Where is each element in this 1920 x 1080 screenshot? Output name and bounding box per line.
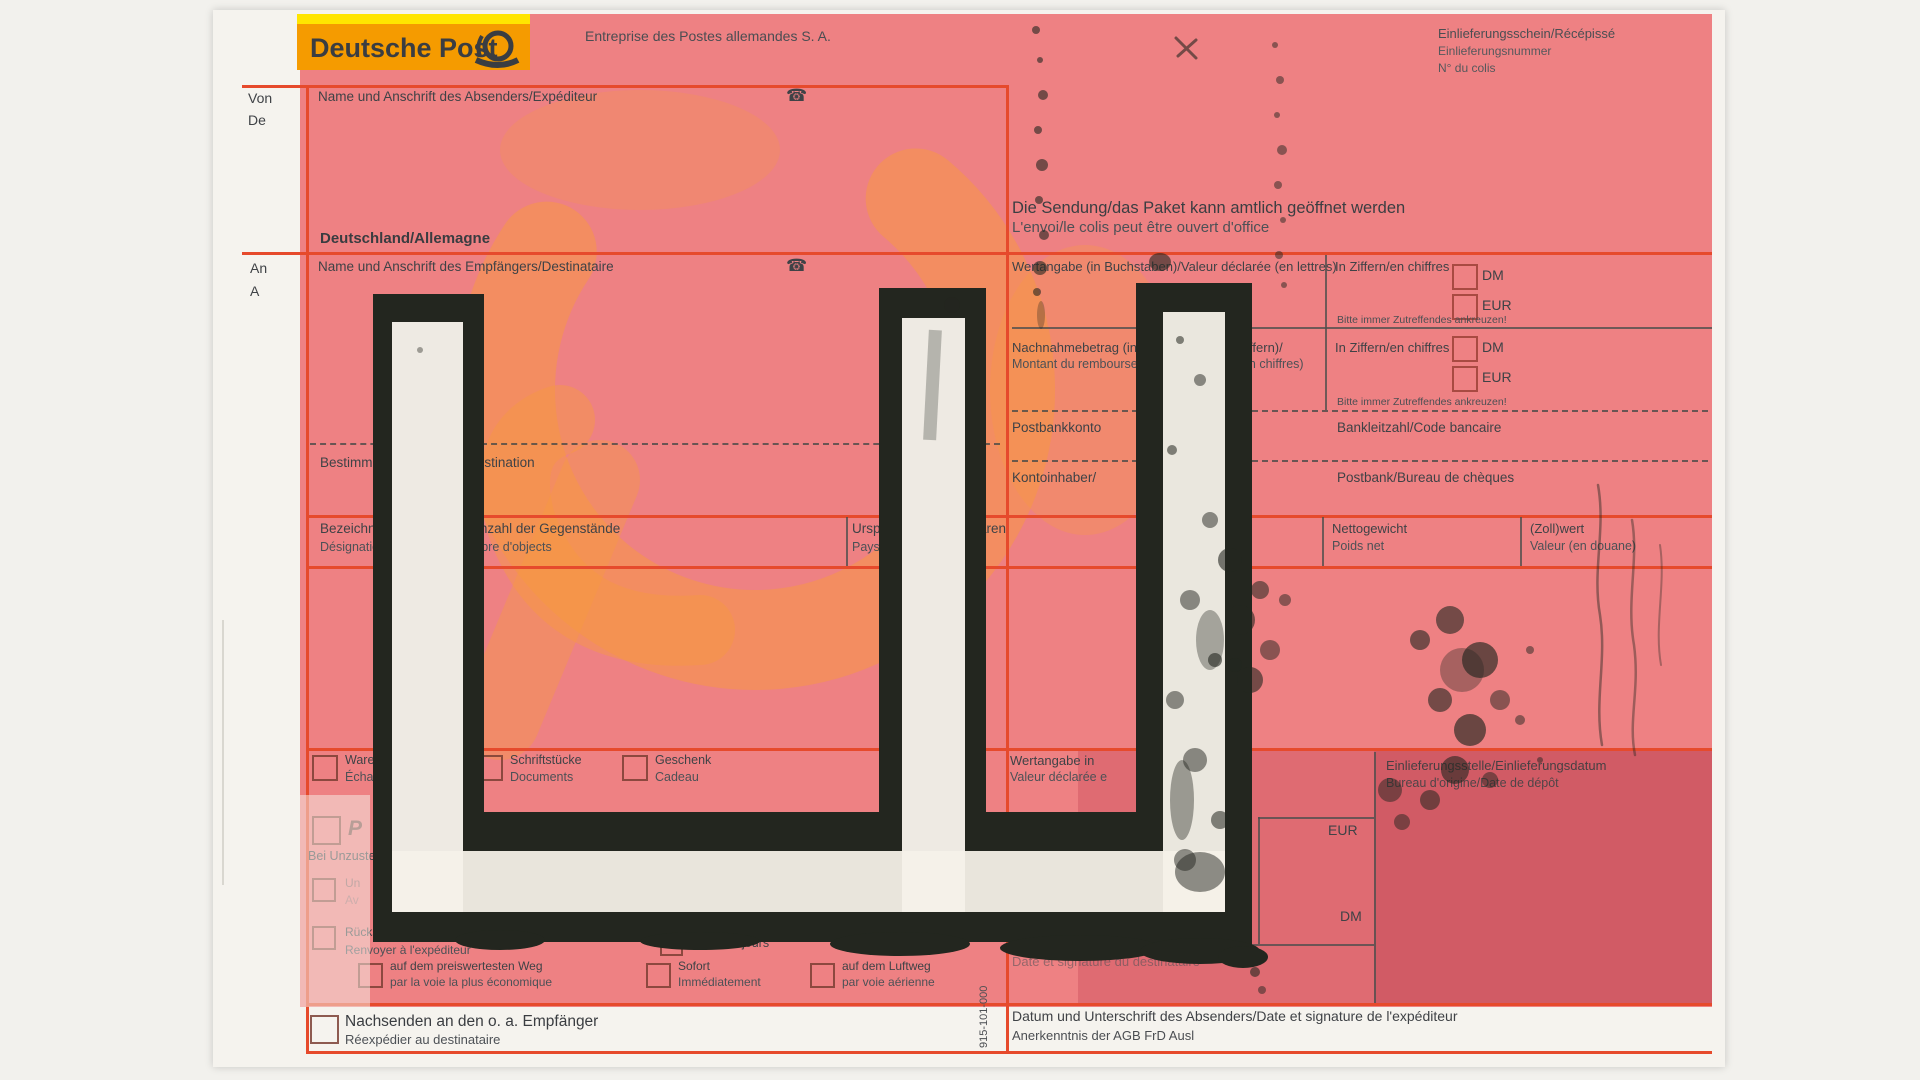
gray-customs-div3	[1520, 517, 1522, 566]
airmail-label-de: auf dem Luftweg	[842, 959, 931, 973]
customs-origin-fr: Pays d'origine	[852, 540, 930, 555]
postbank-account-label[interactable]: Postbankkonto	[1012, 420, 1101, 436]
sender-field-label[interactable]: Name und Anschrift des Absenders/Expédit…	[318, 89, 597, 105]
after-days-checkbox[interactable]	[660, 933, 683, 956]
line-bottom-section	[306, 748, 1712, 751]
receipt-title: Einlieferungsschein/Récépissé	[1438, 26, 1615, 42]
cod-label-de: Nachnahmebetrag (in Buchstaben und Ziffe…	[1012, 340, 1283, 356]
immediate-label-fr: Immédiatement	[678, 975, 761, 989]
customs-content-fr: Désignation du contenu/Nombre d'objects	[320, 540, 552, 555]
undeliverable-label: Bei Unzustellbarkeit	[308, 849, 418, 864]
return-label-de: Rücksenden	[345, 925, 412, 939]
receipt-number-label: Einlieferungsnummer	[1438, 44, 1551, 58]
scanned-postal-form: Deutsche Post Entreprise des Postes alle…	[0, 0, 1920, 1080]
customs-content-de: Bezeichnung des Inhalts/Anzahl der Gegen…	[320, 521, 620, 537]
notify-checkbox[interactable]	[312, 878, 336, 902]
return-checkbox[interactable]	[312, 926, 336, 950]
cod-hint: Bitte immer Zutreffendes ankreuzen!	[1337, 396, 1507, 409]
office-label-de: Einlieferungsstelle/Einlieferungsdatum	[1386, 758, 1606, 774]
sample-label-de: Warenmuster	[345, 753, 420, 768]
gift-label-de: Geschenk	[655, 753, 711, 768]
office-label-fr: Bureau d'origine/Date de dépôt	[1386, 776, 1559, 791]
dash-bank-bottom	[1012, 460, 1708, 462]
value-decl-fr: Valeur déclarée e	[1010, 770, 1107, 785]
posthorn-icon	[468, 26, 526, 70]
gray-eur-cell-top	[1258, 817, 1374, 819]
recipient-an-label: An	[250, 260, 267, 277]
paper-crease	[222, 620, 224, 885]
recipient-a-label: A	[250, 283, 259, 300]
gray-customs-div1	[846, 517, 848, 566]
gift-checkbox[interactable]	[622, 755, 648, 781]
cod-dm-label: DM	[1482, 339, 1504, 356]
immediate-checkbox[interactable]	[646, 963, 671, 988]
sender-de-label: De	[248, 112, 266, 129]
dest-sign-label: Date et signature du destinataire	[1012, 954, 1200, 970]
line-customs-top	[306, 515, 1712, 518]
phone-icon: ☎	[786, 86, 807, 106]
forward-label-de: Nachsenden an den o. a. Empfänger	[345, 1013, 598, 1032]
value-label: Wertangabe (in Buchstaben)/Valeur déclar…	[1012, 259, 1337, 275]
gray-value-row-bottom	[1012, 327, 1712, 329]
value-eur-label: EUR	[1482, 297, 1512, 314]
dm-cell-label: DM	[1340, 908, 1362, 925]
documents-checkbox[interactable]	[477, 755, 503, 781]
cod-dm-checkbox[interactable]	[1452, 336, 1478, 362]
cod-label-fr: Montant du remboursement (en lettres et …	[1012, 357, 1304, 372]
dash-cod-bottom	[1012, 410, 1708, 412]
return-label-fr: Renvoyer à l'expéditeur	[345, 943, 471, 957]
agb-label: Anerkenntnis der AGB FrD Ausl	[1012, 1028, 1194, 1044]
line-footer-bottom	[306, 1051, 1712, 1054]
phone-icon: ☎	[786, 256, 807, 276]
cheapest-label-de: auf dem preiswertesten Weg	[390, 959, 543, 973]
line-customs-bottom	[306, 566, 1712, 569]
value-ziffern-label: In Ziffern/en chiffres	[1335, 259, 1449, 275]
documents-label-fr: Documents	[510, 770, 573, 785]
gray-customs-div2	[1322, 517, 1324, 566]
recipient-field-label[interactable]: Name und Anschrift des Empfängers/Destin…	[318, 259, 614, 275]
signature-label: Datum und Unterschrift des Absenders/Dat…	[1012, 1008, 1457, 1025]
forward-checkbox[interactable]	[310, 1015, 339, 1044]
gray-office-divider	[1374, 752, 1376, 1003]
customs-value-fr: Valeur (en douane)	[1530, 539, 1636, 554]
account-holder-label[interactable]: Kontoinhaber/	[1012, 470, 1096, 486]
open-notice-fr: L'envoi/le colis peut être ouvert d'offi…	[1012, 219, 1269, 237]
sample-checkbox[interactable]	[312, 755, 338, 781]
after-label: Après	[692, 936, 725, 951]
cod-eur-checkbox[interactable]	[1452, 366, 1478, 392]
receipt-colis-label: N° du colis	[1438, 61, 1496, 75]
logo-yellow-stripe	[297, 14, 530, 24]
eur-cell-label: EUR	[1328, 822, 1358, 839]
bank-code-label[interactable]: Bankleitzahl/Code bancaire	[1337, 420, 1501, 436]
gray-dm-cell-bottom	[1090, 944, 1374, 946]
airmail-label-fr: par voie aérienne	[842, 975, 935, 989]
documents-label-de: Schriftstücke	[510, 753, 582, 768]
value-hint: Bitte immer Zutreffendes ankreuzen!	[1337, 314, 1507, 327]
customs-value-de: (Zoll)wert	[1530, 521, 1584, 537]
gray-eur-cell-left	[1258, 817, 1260, 944]
p-option-label: P	[348, 816, 362, 841]
customs-net-fr: Poids net	[1332, 539, 1384, 554]
value-dm-label: DM	[1482, 267, 1504, 284]
gift-label-fr: Cadeau	[655, 770, 699, 785]
sender-von-label: Von	[248, 90, 272, 107]
postbank-office-label: Postbank/Bureau de chèques	[1337, 470, 1514, 486]
open-notice-de: Die Sendung/das Paket kann amtlich geöff…	[1012, 199, 1405, 219]
airmail-checkbox[interactable]	[810, 963, 835, 988]
dash-destination	[310, 443, 1000, 445]
line-footer-top	[306, 1003, 1712, 1006]
customs-net-de: Nettogewicht	[1332, 521, 1407, 537]
sample-label-fr: Échantillon	[345, 770, 406, 785]
logo-company: Entreprise des Postes allemandes S. A.	[585, 28, 831, 45]
p-option-checkbox[interactable]	[312, 816, 341, 845]
gray-ziffern-divider	[1325, 255, 1327, 410]
line-sender-top	[242, 85, 1006, 88]
destination-label[interactable]: Bestimmungsort/Lieu de destination	[320, 455, 535, 471]
customs-origin-de: Ursprungsland der Waren	[852, 521, 1006, 537]
notify-label-fr: Av	[345, 893, 359, 907]
form-number: 915-101-000	[978, 928, 991, 1048]
sender-country: Deutschland/Allemagne	[320, 230, 490, 248]
cod-ziffern-label: In Ziffern/en chiffres	[1335, 340, 1449, 356]
cod-eur-label: EUR	[1482, 369, 1512, 386]
line-recipient-top	[242, 252, 1712, 255]
line-center-divider	[1006, 85, 1009, 1051]
value-decl-de: Wertangabe in	[1010, 753, 1094, 769]
forward-label-fr: Réexpédier au destinataire	[345, 1032, 500, 1048]
cheapest-label-fr: par la voie la plus économique	[390, 975, 552, 989]
line-left-border	[306, 85, 309, 1051]
value-dm-checkbox[interactable]	[1452, 264, 1478, 290]
immediate-label-de: Sofort	[678, 959, 710, 973]
notify-label-de: Un	[345, 876, 360, 890]
cheapest-checkbox[interactable]	[358, 963, 383, 988]
days-label: jours	[742, 936, 769, 951]
